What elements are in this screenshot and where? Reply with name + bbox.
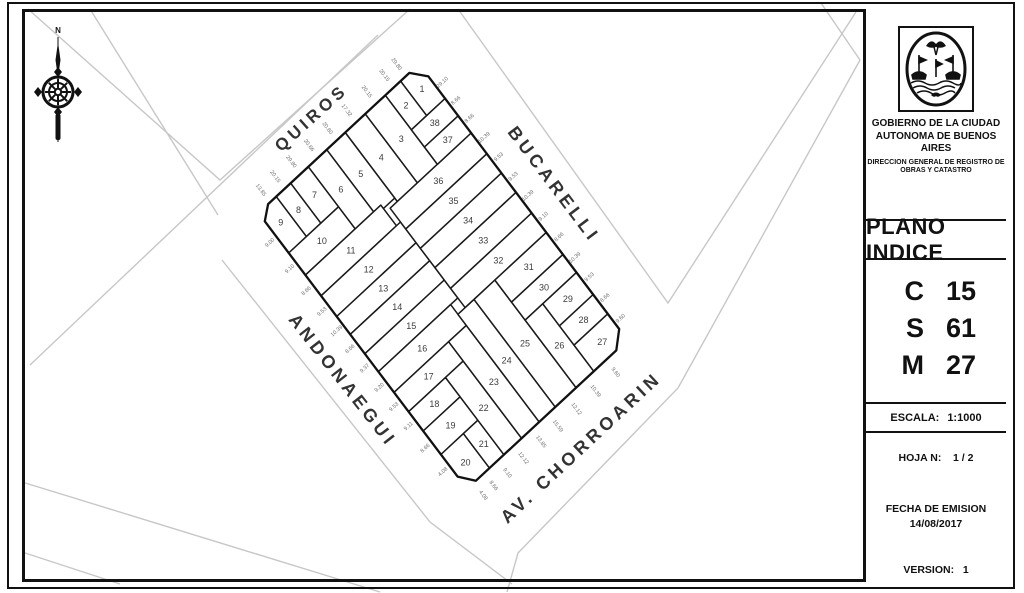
sheet-number-row: HOJA N: 1 / 2 (866, 452, 1006, 464)
scale-section: ESCALA: 1:1000 (866, 404, 1006, 433)
csm-key-c: C (866, 276, 924, 307)
csm-key-m: M (866, 350, 924, 381)
sheet-number-value: 1 / 2 (953, 452, 973, 464)
issue-date-label: FECHA DE EMISION (866, 503, 1006, 515)
csm-row-s: S 61 (866, 310, 1006, 347)
issue-date-value: 14/08/2017 (866, 518, 1006, 530)
plano-indice-page: 1234567891011121314151617181920212223242… (0, 0, 1024, 593)
csm-key-s: S (866, 313, 924, 344)
coat-of-arms-frame (898, 26, 974, 112)
csm-row-c: C 15 (866, 273, 1006, 310)
version-label: VERSION: (903, 564, 954, 576)
sheet-info-section: HOJA N: 1 / 2 FECHA DE EMISION 14/08/201… (866, 433, 1006, 593)
csm-row-m: M 27 (866, 347, 1006, 384)
scale-value: 1:1000 (947, 412, 981, 424)
scale-label: ESCALA: (890, 412, 939, 424)
sheet-number-label: HOJA N: (899, 452, 942, 464)
org-dept-line2: OBRAS Y CATASTRO (866, 167, 1006, 176)
government-section: GOBIERNO DE LA CIUDAD AUTONOMA DE BUENOS… (866, 26, 1006, 221)
org-name-line2: AUTONOMA DE BUENOS AIRES (866, 131, 1006, 156)
csm-value-m: 27 (946, 350, 976, 381)
csm-value-s: 61 (946, 313, 976, 344)
document-title: PLANO INDICE (866, 221, 1006, 260)
org-name-line1: GOBIERNO DE LA CIUDAD (866, 118, 1006, 131)
buenos-aires-coat-of-arms-icon (901, 29, 971, 109)
csm-section: C 15 S 61 M 27 (866, 260, 1006, 404)
title-block-sidebar: GOBIERNO DE LA CIUDAD AUTONOMA DE BUENOS… (863, 9, 1006, 582)
version-row: VERSION: 1 (866, 564, 1006, 576)
version-value: 1 (963, 564, 969, 576)
csm-value-c: 15 (946, 276, 976, 307)
org-dept-line1: DIRECCION GENERAL DE REGISTRO DE (866, 159, 1006, 168)
map-frame-border (22, 9, 1006, 582)
